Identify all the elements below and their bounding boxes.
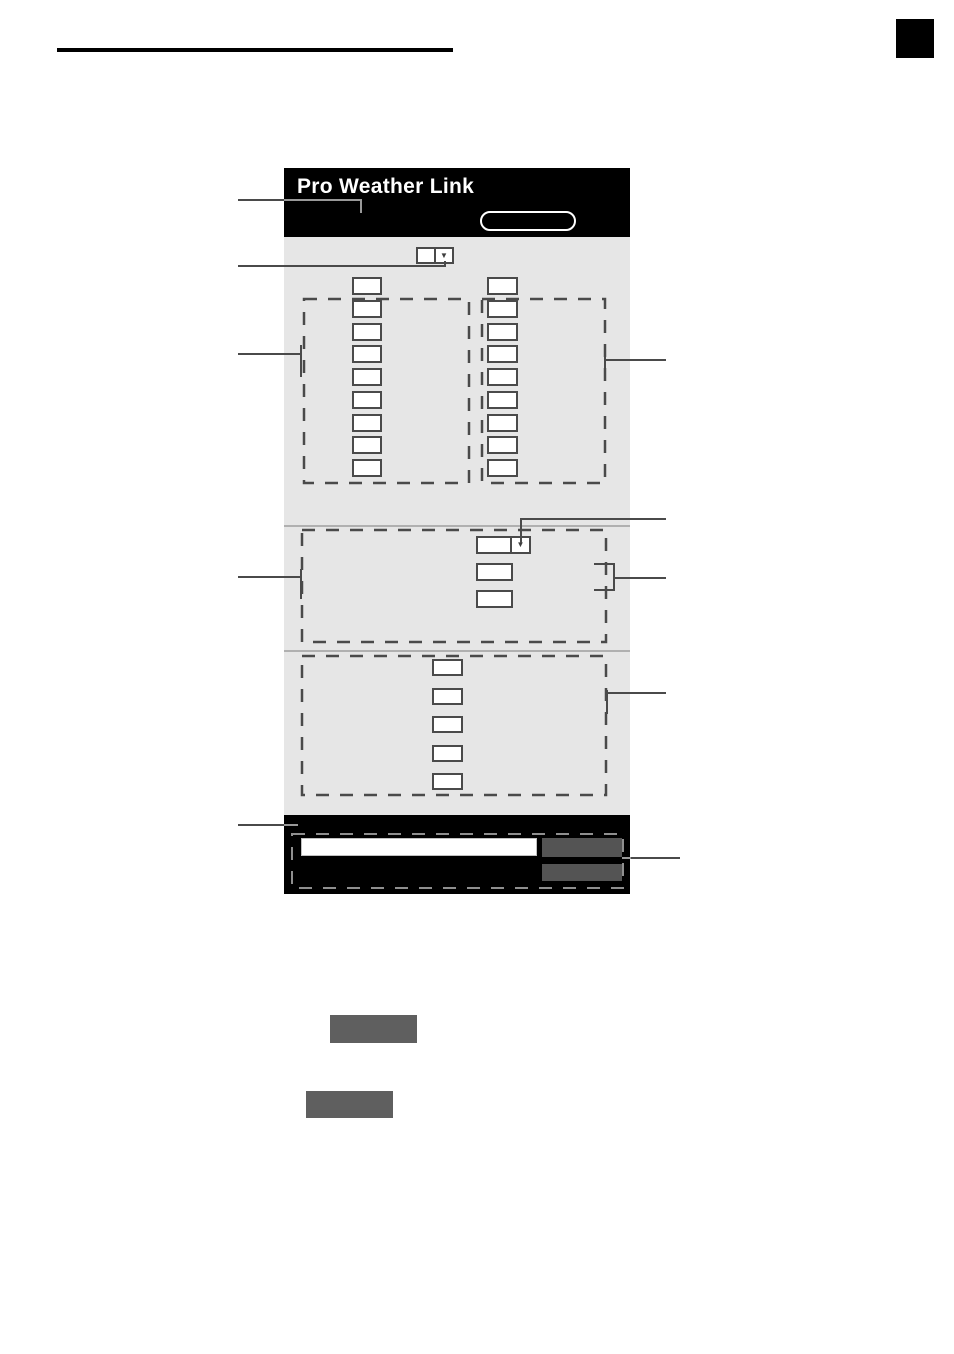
manual-page: Pro Weather Link ▼ — [0, 0, 954, 1354]
section2-dropdown[interactable]: ▼ — [476, 536, 531, 554]
data-field[interactable] — [352, 345, 382, 363]
callout-line-section3 — [608, 692, 666, 694]
data-field[interactable] — [352, 436, 382, 454]
footer-button-1[interactable] — [542, 838, 622, 857]
data-field[interactable] — [476, 590, 513, 608]
data-field[interactable] — [487, 277, 518, 295]
callout-line-top-dropdown — [444, 261, 446, 267]
section3-field-column — [432, 659, 463, 790]
data-field[interactable] — [432, 659, 463, 676]
data-field[interactable] — [487, 300, 518, 318]
data-field[interactable] — [352, 323, 382, 341]
data-field[interactable] — [352, 391, 382, 409]
data-field[interactable] — [487, 459, 518, 477]
data-field[interactable] — [352, 368, 382, 386]
page-number-tab — [896, 19, 934, 58]
callout-line-section1-right — [604, 346, 606, 378]
callout-bracket-section2 — [594, 563, 615, 565]
dropdown-arrow-icon: ▼ — [440, 252, 448, 260]
callout-line-top-dropdown — [238, 265, 446, 267]
section1-right-field-column — [487, 277, 518, 477]
data-field[interactable] — [476, 563, 513, 581]
callout-bracket-section2 — [615, 577, 666, 579]
callout-line-section2-left — [238, 576, 301, 578]
data-field[interactable] — [432, 716, 463, 733]
data-field[interactable] — [487, 368, 518, 386]
data-field[interactable] — [352, 414, 382, 432]
app-window-illustration: Pro Weather Link ▼ — [284, 168, 630, 894]
dropdown-arrow-button[interactable]: ▼ — [434, 249, 452, 262]
callout-bracket-section2 — [594, 589, 615, 591]
data-field[interactable] — [487, 323, 518, 341]
data-field[interactable] — [352, 300, 382, 318]
section2-field-column — [476, 563, 513, 608]
dropdown-value — [478, 538, 510, 552]
callout-line-footer-right — [631, 857, 680, 859]
section-divider — [284, 650, 630, 652]
callout-line-section1-left — [300, 345, 302, 377]
text-entry-field[interactable] — [301, 838, 537, 856]
heading-rule — [57, 48, 453, 52]
top-dropdown[interactable]: ▼ — [416, 247, 454, 264]
section-divider — [284, 525, 630, 527]
titlebar-pill-button[interactable] — [480, 211, 576, 231]
callout-line-titlebar — [238, 199, 284, 201]
footer-button-2[interactable] — [542, 864, 622, 881]
illustrated-button-2[interactable] — [306, 1091, 393, 1118]
section1-left-field-column — [352, 277, 382, 477]
callout-line-footer-left — [284, 824, 298, 826]
data-field[interactable] — [432, 688, 463, 705]
illustrated-button-1[interactable] — [330, 1015, 417, 1043]
callout-line-section2-left — [300, 569, 302, 599]
data-field[interactable] — [487, 391, 518, 409]
app-footer-bar — [284, 815, 630, 894]
callout-line-section1-right — [606, 359, 666, 361]
data-field[interactable] — [352, 277, 382, 295]
data-field[interactable] — [487, 414, 518, 432]
callout-line-titlebar — [284, 199, 362, 201]
app-title-bar: Pro Weather Link — [284, 168, 630, 237]
app-title: Pro Weather Link — [297, 175, 474, 199]
callout-line-section1-left — [238, 353, 301, 355]
callout-line-footer-right — [622, 857, 631, 859]
callout-line-footer-left — [238, 824, 284, 826]
callout-line-titlebar — [360, 200, 362, 213]
data-field[interactable] — [487, 345, 518, 363]
data-field[interactable] — [432, 773, 463, 790]
data-field[interactable] — [352, 459, 382, 477]
callout-line-section2-dropdown — [520, 518, 666, 520]
dropdown-value — [418, 249, 434, 262]
data-field[interactable] — [432, 745, 463, 762]
data-field[interactable] — [487, 436, 518, 454]
callout-line-section2-dropdown — [520, 520, 522, 543]
